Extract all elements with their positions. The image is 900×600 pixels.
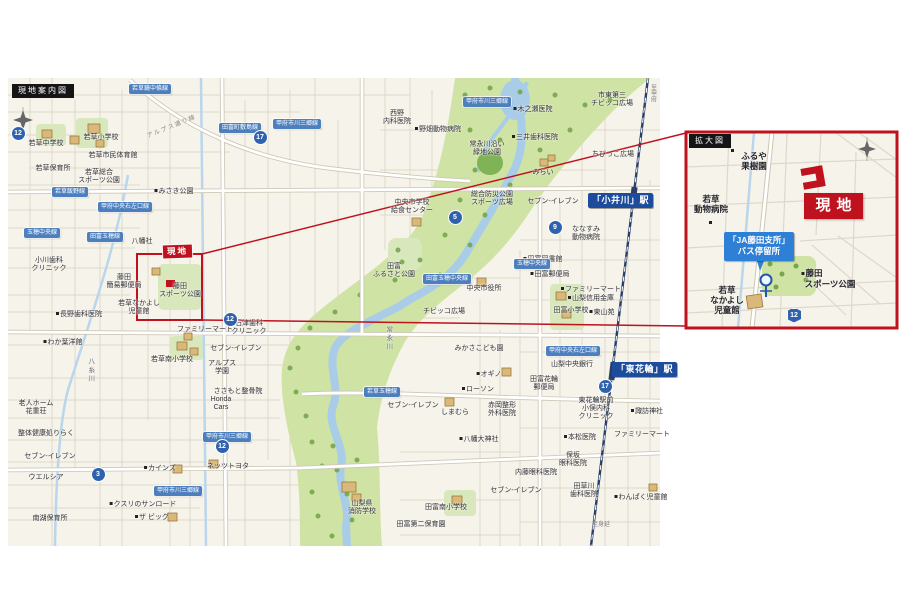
map-label: 田草川歯科医院 xyxy=(570,483,598,499)
map-label: わか葉洋館 xyxy=(44,339,83,347)
inset-title: 拡大図 xyxy=(689,134,731,148)
map-label: 長野歯科医院 xyxy=(56,311,102,319)
map-label: 南湖保育所 xyxy=(33,515,68,523)
map-label: 整体健康処りらく xyxy=(18,430,74,438)
road-name-plate: 若草鏡中條線 xyxy=(129,84,171,94)
map-label: 山梨信用金庫 xyxy=(568,295,614,303)
map-label: 藤田簡易郵便局 xyxy=(107,274,142,290)
poi-dot-icon xyxy=(155,189,158,192)
map-label: アルプス通り線 xyxy=(146,114,197,140)
map-title: 現地案内図 xyxy=(12,84,74,98)
map-label: 小川歯科クリニック xyxy=(32,257,67,273)
map-label: 田富南小学校 xyxy=(425,504,467,512)
poi-dot-icon xyxy=(110,502,113,505)
map-label: 若草なかよし児童館 xyxy=(710,285,744,316)
poi-dot-icon xyxy=(568,296,571,299)
poi-dot-icon xyxy=(144,466,147,469)
route-number-badge: 17 xyxy=(599,380,612,393)
map-label: 東花輪駅前小俣内科クリニック xyxy=(579,397,614,421)
labels-layer: 若草中学校若草小学校若草市民体育館若草保育所若草総合スポーツ公園みさき公園八幡社… xyxy=(0,0,900,600)
map-label: 至甲府 xyxy=(649,84,656,102)
map-label: 山梨県消防学校 xyxy=(348,500,376,516)
poi-dot-icon xyxy=(477,372,480,375)
map-label: 三井歯科医院 xyxy=(512,134,558,142)
map-label: 藤田スポーツ公園 xyxy=(159,283,201,299)
map-label: 若草動物病院 xyxy=(694,194,728,214)
station-label-higashihanawa: 「東花輪」駅 xyxy=(612,362,677,377)
map-label: 中央市役所 xyxy=(467,285,502,293)
map-label: 若草小学校 xyxy=(84,134,119,142)
route-number-badge: 9 xyxy=(549,221,562,234)
map-label: 至身延 xyxy=(592,522,610,529)
map-label: カインズ xyxy=(144,465,176,473)
map-label: チビッコ広場 xyxy=(423,308,465,316)
map-label: 若草中学校 xyxy=(29,140,64,148)
road-name-plate: 田富玉穂線 xyxy=(87,232,123,242)
road-name-plate: 田富町敷島線 xyxy=(219,123,261,133)
poi-dot-icon xyxy=(631,409,634,412)
poi-dot-icon xyxy=(415,127,418,130)
site-label-inset: 現地 xyxy=(804,193,863,219)
poi-dot-icon xyxy=(590,310,593,313)
map-label: オギノ xyxy=(477,371,502,379)
map-label: 諏訪神社 xyxy=(631,408,663,416)
route-number-badge: 3 xyxy=(92,468,105,481)
poi-dot-icon xyxy=(56,312,59,315)
bus-stop-label: 「JA藤田支所」 バス停留所 xyxy=(724,232,794,261)
poi-dot-icon xyxy=(531,272,534,275)
map-label: ちびっこ広場 xyxy=(592,151,634,159)
poi-dot-icon xyxy=(44,340,47,343)
map-label: 保坂眼科医院 xyxy=(559,452,587,468)
map-label: わんぱく児童館 xyxy=(615,494,668,502)
map-label: ウエルシア xyxy=(29,474,64,482)
map-label: ローソン xyxy=(462,386,494,394)
bus-stop-line1: 「JA藤田支所」 xyxy=(728,235,790,246)
map-label: ザ ビッグ xyxy=(135,514,169,522)
road-name-plate: 甲府中央右左口線 xyxy=(546,346,600,356)
map-label: 田富花輪郵便局 xyxy=(530,376,558,392)
map-label: 常永川沿い緑地公園 xyxy=(470,141,505,157)
location-guide-map: 若草中学校若草小学校若草市民体育館若草保育所若草総合スポーツ公園みさき公園八幡社… xyxy=(0,0,900,600)
site-label-main: 現地 xyxy=(163,244,192,258)
poi-dot-icon xyxy=(561,287,564,290)
map-label: 東山苑 xyxy=(590,309,615,317)
map-label: 老人ホーム花重荘 xyxy=(19,400,54,416)
route-number-badge: 12 xyxy=(787,308,802,323)
route-number-badge: 5 xyxy=(449,211,462,224)
road-name-plate: 甲府中央右左口線 xyxy=(98,202,152,212)
map-label: ななすみ動物病院 xyxy=(572,226,600,242)
map-label: 中央市学校給食センター xyxy=(391,199,433,215)
poi-dot-icon xyxy=(460,437,463,440)
route-number-badge: 12 xyxy=(216,440,229,453)
map-label: みかさこども園 xyxy=(455,345,504,353)
poi-dot-icon xyxy=(615,495,618,498)
route-number-badge: 12 xyxy=(12,127,25,140)
map-label: 若草南小学校 xyxy=(151,356,193,364)
map-label: HondaCars xyxy=(211,396,232,412)
map-label: 藤田 xyxy=(801,268,822,278)
map-label: ファミリーマート xyxy=(561,286,621,294)
road-name-plate: 若草飯野線 xyxy=(52,187,88,197)
map-label: 若草なかよし児童館 xyxy=(118,300,160,316)
map-label: スポーツ公園 xyxy=(805,279,856,289)
map-label: ファミリーマート xyxy=(614,431,670,439)
map-label: セブン-イレブン xyxy=(387,402,438,410)
map-label: 若草総合スポーツ公園 xyxy=(78,169,120,185)
map-label: セブン-イレブン xyxy=(527,198,578,206)
map-label: 野畑動物病院 xyxy=(415,126,461,134)
map-label: 若草市民体育館 xyxy=(89,152,138,160)
road-name-plate: 玉穂中央線 xyxy=(24,228,60,238)
poi-dot-icon xyxy=(462,387,465,390)
map-label: 総合防災公園スポーツ広場 xyxy=(471,191,513,207)
map-label: 市東第三チビッコ広場 xyxy=(591,92,633,108)
map-label: 山梨中央銀行 xyxy=(551,361,593,369)
map-label: 石津歯科クリニック xyxy=(232,320,267,336)
map-label: 八糸川 xyxy=(86,358,93,384)
road-name-plate: 甲府市川三郷線 xyxy=(203,432,251,442)
road-name-plate: 玉穂中央線 xyxy=(514,259,550,269)
map-label: みらい xyxy=(533,169,554,177)
road-name-plate: 甲府市川三郷線 xyxy=(273,119,321,129)
route-number-badge: 17 xyxy=(254,131,267,144)
map-label: ささもと整骨院 xyxy=(214,388,263,396)
map-label: クスリのサンロード xyxy=(110,501,177,509)
poi-dot-icon xyxy=(135,515,138,518)
poi-dot-icon xyxy=(801,272,804,275)
map-label: 田富小学校 xyxy=(554,307,589,315)
map-label: 田富ふるさと公園 xyxy=(373,263,415,279)
route-number-badge: 12 xyxy=(224,313,237,326)
map-label: セブン-イレブン xyxy=(490,487,541,495)
map-label: 常永川 xyxy=(384,326,391,352)
map-label: セブン-イレブン xyxy=(210,345,261,353)
map-label: 八幡社 xyxy=(132,238,153,246)
map-label: ネッツトヨタ xyxy=(207,463,249,471)
bus-stop-line2: バス停留所 xyxy=(728,246,790,257)
poi-dot-icon xyxy=(514,107,517,110)
road-name-plate: 田富玉穂中央線 xyxy=(423,274,471,284)
road-name-plate: 若草玉穂線 xyxy=(364,387,400,397)
map-label: みさき公園 xyxy=(155,188,194,196)
map-label: 西野内科医院 xyxy=(383,110,411,126)
poi-dot-icon xyxy=(564,435,567,438)
station-label-koigawa: 「小井川」駅 xyxy=(588,193,653,208)
map-label: ファミリーマート xyxy=(177,326,233,334)
map-label: 本松医院 xyxy=(564,434,596,442)
map-label: アルプス学園 xyxy=(208,360,236,376)
map-label: 内藤眼科医院 xyxy=(515,469,557,477)
map-label: ふるや果樹園 xyxy=(741,151,767,171)
map-label: 若草保育所 xyxy=(36,165,71,173)
road-name-plate: 甲府市川三郷線 xyxy=(154,486,202,496)
map-label: 赤岡整形外科医院 xyxy=(488,402,516,418)
map-label: 田富郵便局 xyxy=(531,271,570,279)
map-label: しまむら xyxy=(441,409,469,417)
poi-dot-icon xyxy=(512,135,515,138)
map-label: セブン-イレブン xyxy=(24,453,75,461)
map-label: 八幡大神社 xyxy=(460,436,499,444)
road-name-plate: 甲府市川三郷線 xyxy=(463,97,511,107)
map-label: 木之瀬医院 xyxy=(514,106,553,114)
map-label: 田富第二保育園 xyxy=(397,521,446,529)
